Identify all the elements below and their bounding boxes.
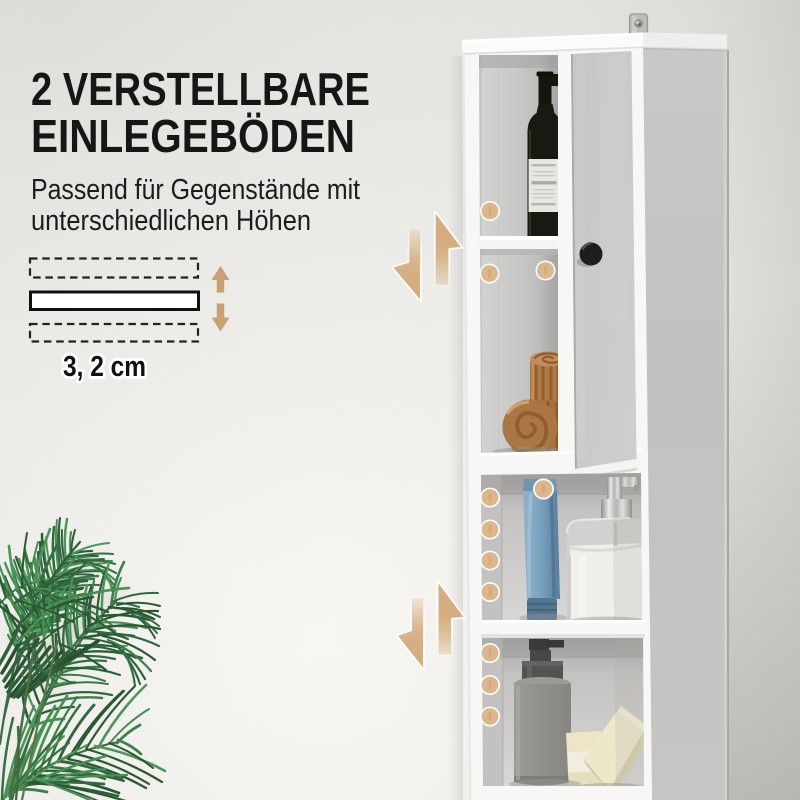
svg-text:unterschiedlichen Höhen: unterschiedlichen Höhen <box>31 205 311 237</box>
svg-text:2 VERSTELLBARE: 2 VERSTELLBARE <box>31 63 370 115</box>
svg-text:3, 2 cm: 3, 2 cm <box>63 351 146 383</box>
svg-text:Passend für Gegenstände mit: Passend für Gegenstände mit <box>31 174 360 206</box>
svg-text:EINLEGEBÖDEN: EINLEGEBÖDEN <box>31 110 355 162</box>
